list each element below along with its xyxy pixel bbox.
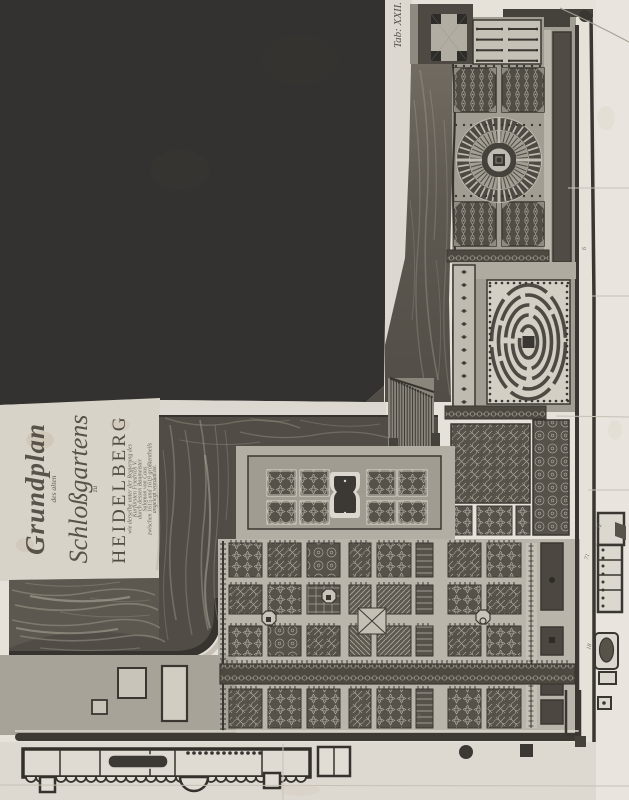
svg-text:34: 34 xyxy=(415,713,423,721)
svg-text:zu: zu xyxy=(91,485,99,493)
svg-text:Schloßgartens: Schloßgartens xyxy=(64,415,93,564)
svg-text:angelegt worden ist.: angelegt worden ist. xyxy=(152,465,158,514)
svg-text:Tab: XXII.: Tab: XXII. xyxy=(392,2,404,48)
svg-text:Grundplan: Grundplan xyxy=(20,423,50,555)
svg-text:des alten: des alten xyxy=(49,475,58,502)
svg-text:6: 6 xyxy=(582,247,588,250)
